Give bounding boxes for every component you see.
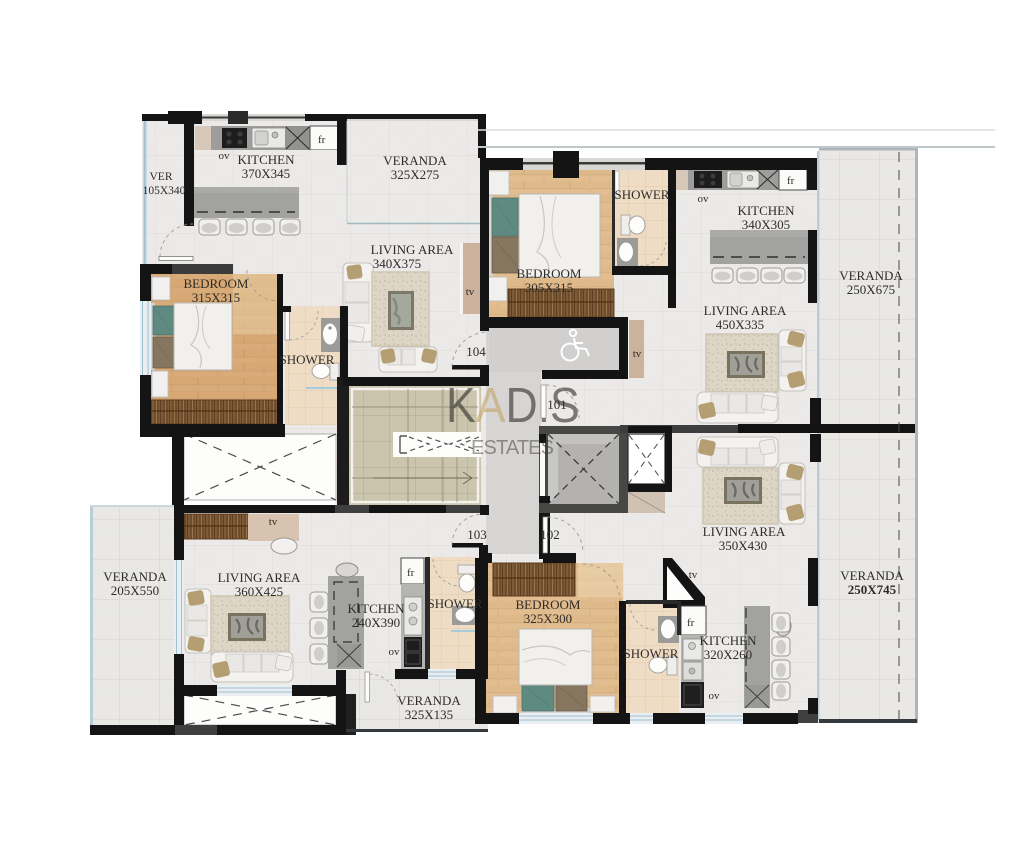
svg-text:ov: ov bbox=[709, 690, 721, 702]
svg-text:LIVING AREA: LIVING AREA bbox=[703, 524, 786, 539]
svg-text:BEDROOM: BEDROOM bbox=[515, 597, 580, 612]
svg-text:LIVING AREA: LIVING AREA bbox=[218, 570, 301, 585]
svg-text:325X275: 325X275 bbox=[391, 167, 439, 182]
svg-text:tv: tv bbox=[269, 516, 278, 528]
svg-text:340X375: 340X375 bbox=[373, 256, 421, 271]
svg-text:205X550: 205X550 bbox=[111, 583, 159, 598]
svg-text:450X335: 450X335 bbox=[716, 317, 764, 332]
svg-text:325X135: 325X135 bbox=[405, 707, 453, 722]
svg-text:103: 103 bbox=[467, 527, 487, 542]
svg-text:305X315: 305X315 bbox=[525, 280, 573, 295]
svg-text:VERANDA: VERANDA bbox=[839, 268, 903, 283]
svg-text:320X260: 320X260 bbox=[704, 647, 752, 662]
svg-text:105X340: 105X340 bbox=[143, 185, 186, 197]
svg-text:LIVING AREA: LIVING AREA bbox=[704, 303, 787, 318]
svg-text:360X425: 360X425 bbox=[235, 584, 283, 599]
svg-text:VERANDA: VERANDA bbox=[397, 693, 461, 708]
svg-text:370X345: 370X345 bbox=[242, 166, 290, 181]
svg-text:VERANDA: VERANDA bbox=[103, 569, 167, 584]
svg-text:315X315: 315X315 bbox=[192, 290, 240, 305]
svg-text:KITCHEN: KITCHEN bbox=[737, 203, 795, 218]
svg-text:101: 101 bbox=[547, 397, 567, 412]
svg-text:250X675: 250X675 bbox=[847, 282, 895, 297]
svg-text:BEDROOM: BEDROOM bbox=[183, 276, 248, 291]
svg-text:KITCHEN: KITCHEN bbox=[699, 633, 757, 648]
svg-text:BEDROOM: BEDROOM bbox=[516, 266, 581, 281]
svg-text:LIVING AREA: LIVING AREA bbox=[371, 242, 454, 257]
svg-text:340X305: 340X305 bbox=[742, 217, 790, 232]
svg-text:SHOWER: SHOWER bbox=[624, 646, 679, 661]
svg-text:VERANDA: VERANDA bbox=[383, 153, 447, 168]
svg-text:fr: fr bbox=[318, 134, 326, 146]
svg-text:fr: fr bbox=[407, 567, 415, 579]
svg-text:SHOWER: SHOWER bbox=[615, 187, 670, 202]
svg-text:SHOWER: SHOWER bbox=[428, 596, 483, 611]
svg-text:VERANDA: VERANDA bbox=[840, 568, 904, 583]
svg-text:tv: tv bbox=[466, 286, 475, 298]
svg-text:SHOWER: SHOWER bbox=[280, 352, 335, 367]
svg-text:102: 102 bbox=[540, 527, 560, 542]
svg-text:fr: fr bbox=[687, 617, 695, 629]
svg-text:ov: ov bbox=[219, 150, 231, 162]
svg-text:KITCHEN: KITCHEN bbox=[347, 601, 405, 616]
svg-text:350X430: 350X430 bbox=[719, 538, 767, 553]
svg-text:104: 104 bbox=[466, 344, 486, 359]
svg-text:tv: tv bbox=[689, 569, 698, 581]
svg-text:325X300: 325X300 bbox=[524, 611, 572, 626]
svg-text:VER: VER bbox=[150, 171, 173, 183]
svg-text:240X390: 240X390 bbox=[352, 615, 400, 630]
svg-text:ESTATES: ESTATES bbox=[471, 437, 554, 459]
svg-text:ov: ov bbox=[389, 646, 401, 658]
svg-text:fr: fr bbox=[787, 175, 795, 187]
svg-text:250X745: 250X745 bbox=[848, 582, 897, 597]
svg-text:tv: tv bbox=[633, 348, 642, 360]
svg-text:ov: ov bbox=[698, 193, 710, 205]
svg-text:KITCHEN: KITCHEN bbox=[237, 152, 295, 167]
